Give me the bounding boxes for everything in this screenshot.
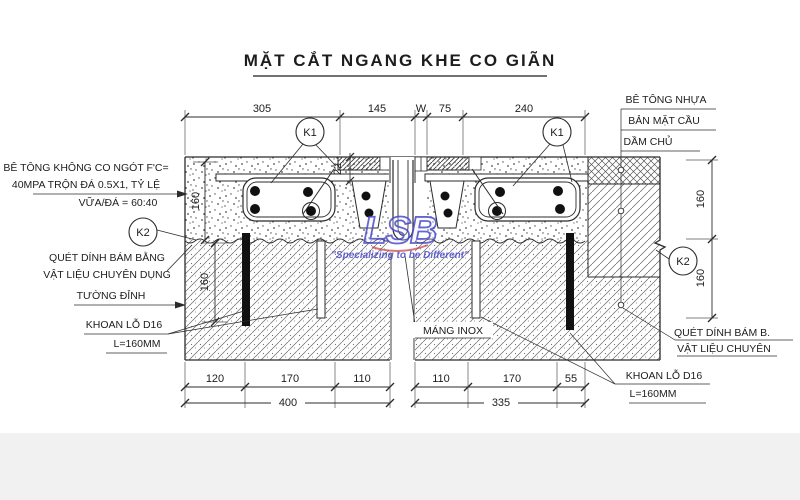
watermark-tagline: "Specializing to be Different" — [331, 250, 469, 261]
anchor-plate-right — [427, 157, 469, 170]
callout-wall: TƯỜNG ĐỈNH — [77, 289, 146, 302]
dim-top-145: 145 — [368, 103, 386, 115]
dim-top-75: 75 — [439, 103, 451, 115]
dim-br-55: 55 — [565, 373, 577, 385]
dim-br-170: 170 — [503, 373, 521, 385]
dim-left-160-upper: 160 — [190, 192, 202, 210]
dim-br-110: 110 — [432, 373, 450, 385]
callout-gutter-label: MÁNG INOX — [423, 324, 483, 337]
callout-drill-right-length: L=160MM — [630, 388, 677, 400]
balloon-k1-left: K1 — [303, 127, 316, 139]
callout-asphalt: BÊ TÔNG NHỰA — [625, 93, 706, 106]
rebar-loop-right — [475, 178, 580, 221]
dim-bl-110: 110 — [353, 373, 371, 385]
dim-br-total-335: 335 — [492, 397, 510, 409]
dim-top-305: 305 — [253, 103, 271, 115]
anchor-plate-left — [338, 157, 380, 170]
dowel-bar-left — [242, 233, 250, 326]
dim-left-160-lower: 160 — [199, 273, 211, 291]
dim-right-160-lower: 160 — [695, 269, 707, 287]
callout-bond-right-line2: VẬT LIỆU CHUYÊN — [677, 342, 771, 355]
drawing-title: MẶT CẮT NGANG KHE CO GIÃN — [244, 50, 557, 70]
dim-bl-120: 120 — [206, 373, 224, 385]
dowel-bar-right — [566, 233, 574, 330]
balloon-k1-right: K1 — [550, 127, 563, 139]
dim-bl-total-400: 400 — [279, 397, 297, 409]
rebar-loop-left — [243, 178, 335, 221]
callout-deck-slab: BẢN MẶT CẦU — [628, 114, 700, 127]
expansion-joint-drawing: MẶT CẮT NGANG KHE CO GIÃN — [0, 0, 800, 500]
dowel-hole-right — [472, 241, 480, 318]
dim-bl-170: 170 — [281, 373, 299, 385]
callout-concrete-line3: VỮA/ĐÁ = 60:40 — [79, 196, 158, 209]
callout-drill-left: KHOAN LỖ D16 — [86, 318, 163, 331]
drawing-sheet: MẶT CẮT NGANG KHE CO GIÃN — [0, 0, 800, 500]
callout-drill-right: KHOAN LỖ D16 — [626, 369, 703, 382]
balloon-k2-right: K2 — [676, 256, 689, 268]
balloon-k2-left: K2 — [136, 227, 149, 239]
callout-concrete-line1: BÊ TÔNG KHÔNG CO NGÓT F'C= — [3, 161, 168, 174]
dim-top-240: 240 — [515, 103, 533, 115]
callout-bond-left-line2: VẬT LIỆU CHUYÊN DỤNG — [43, 268, 171, 281]
dim-plate-22: 22 — [332, 163, 344, 175]
callout-drill-left-length: L=160MM — [114, 338, 161, 350]
callout-bond-right-line1: QUÉT DÍNH BÁM B. — [674, 326, 770, 339]
dim-right-160-upper: 160 — [695, 190, 707, 208]
callout-concrete-line2: 40MPA TRỘN ĐÁ 0.5X1, TỶ LỆ — [12, 178, 160, 191]
dowel-hole-left — [317, 241, 325, 318]
dim-top-w: W — [416, 103, 427, 115]
callout-girder: DẦM CHỦ — [624, 135, 673, 148]
scan-shadow-band — [0, 433, 800, 500]
callout-bond-left-line1: QUÉT DÍNH BÁM BẰNG — [49, 251, 165, 264]
